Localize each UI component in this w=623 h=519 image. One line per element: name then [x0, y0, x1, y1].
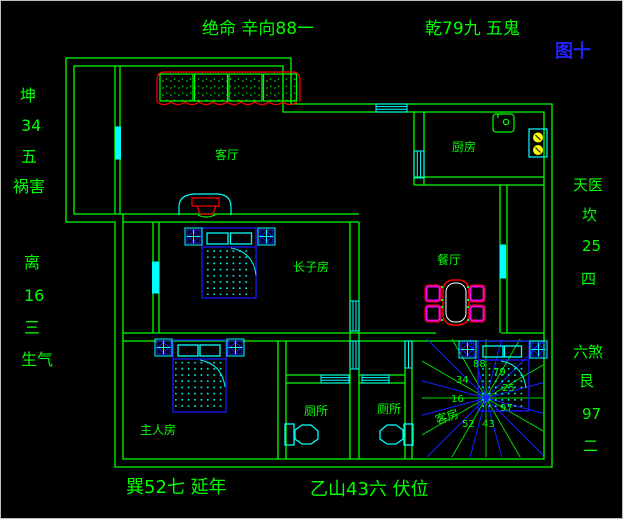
label-kan: 坎	[582, 208, 597, 223]
window-son-left	[153, 262, 159, 293]
window-hall	[350, 341, 359, 369]
dining-door	[501, 245, 506, 278]
figure-number: 图十	[555, 43, 591, 61]
label-liusha: 六煞	[573, 345, 603, 360]
room-label-living: 客厅	[215, 149, 239, 161]
label-top-left-juming: 绝命 辛向88一	[202, 21, 314, 38]
room-label-toilet-left: 厕所	[304, 405, 328, 417]
compass-num-bottom-left: 52	[462, 420, 475, 430]
compass-num-left: 16	[451, 395, 464, 405]
window-toilet-right	[362, 375, 389, 383]
label-34: 34	[21, 118, 41, 134]
label-er: 二	[583, 439, 598, 454]
room-label-toilet-right: 厕所	[377, 403, 401, 415]
dining-set	[425, 280, 485, 325]
compass-num-right: 25	[502, 384, 515, 394]
room-label-eldest-son: 长子房	[293, 261, 329, 273]
sofa	[157, 72, 300, 105]
floor-plan-figure: 绝命 辛向88一 乾79九 五鬼 图十 坤 34 五 祸害 离 16 三 生气 …	[0, 0, 623, 519]
window-son-right	[350, 301, 359, 331]
label-97: 97	[582, 407, 601, 422]
room-label-kitchen: 厨房	[452, 141, 476, 153]
label-25: 25	[582, 239, 601, 254]
label-li: 离	[24, 255, 40, 271]
nightstand-lamp	[258, 228, 275, 245]
label-bottom-yishan: 乙山43六 伏位	[310, 481, 429, 499]
bed-eldest-son	[202, 228, 256, 298]
compass-num-top-right: 79	[493, 368, 506, 378]
label-san: 三	[24, 320, 40, 336]
bed-master	[173, 340, 226, 412]
kitchen-sink	[493, 114, 514, 132]
label-top-right-qian: 乾79九 五鬼	[425, 21, 520, 38]
compass-num-top: 88	[473, 360, 486, 370]
toilet-left	[285, 424, 318, 445]
room-label-master: 主人房	[140, 424, 176, 436]
label-huohai: 祸害	[13, 179, 45, 195]
label-shengqi: 生气	[21, 352, 53, 368]
label-wu: 五	[21, 149, 37, 165]
compass-num-bottom-right: 97	[500, 404, 513, 414]
label-gen: 艮	[579, 374, 594, 389]
toilet-right	[380, 424, 413, 445]
window-guest	[405, 341, 412, 368]
label-si: 四	[581, 272, 596, 287]
window-toilet-left	[321, 375, 349, 383]
window-top	[376, 104, 407, 112]
label-kun: 坤	[20, 88, 36, 104]
window-kitchen	[414, 151, 424, 178]
compass-num-bottom: 43	[482, 420, 495, 430]
room-label-dining: 餐厅	[437, 254, 461, 266]
label-tianyi: 天医	[573, 178, 603, 193]
nightstand-lamp	[185, 228, 202, 245]
label-bottom-xun: 巽52七 延年	[126, 479, 227, 497]
balcony-door	[116, 127, 121, 159]
compass-num-top-left: 34	[456, 376, 469, 386]
label-16: 16	[24, 288, 44, 304]
